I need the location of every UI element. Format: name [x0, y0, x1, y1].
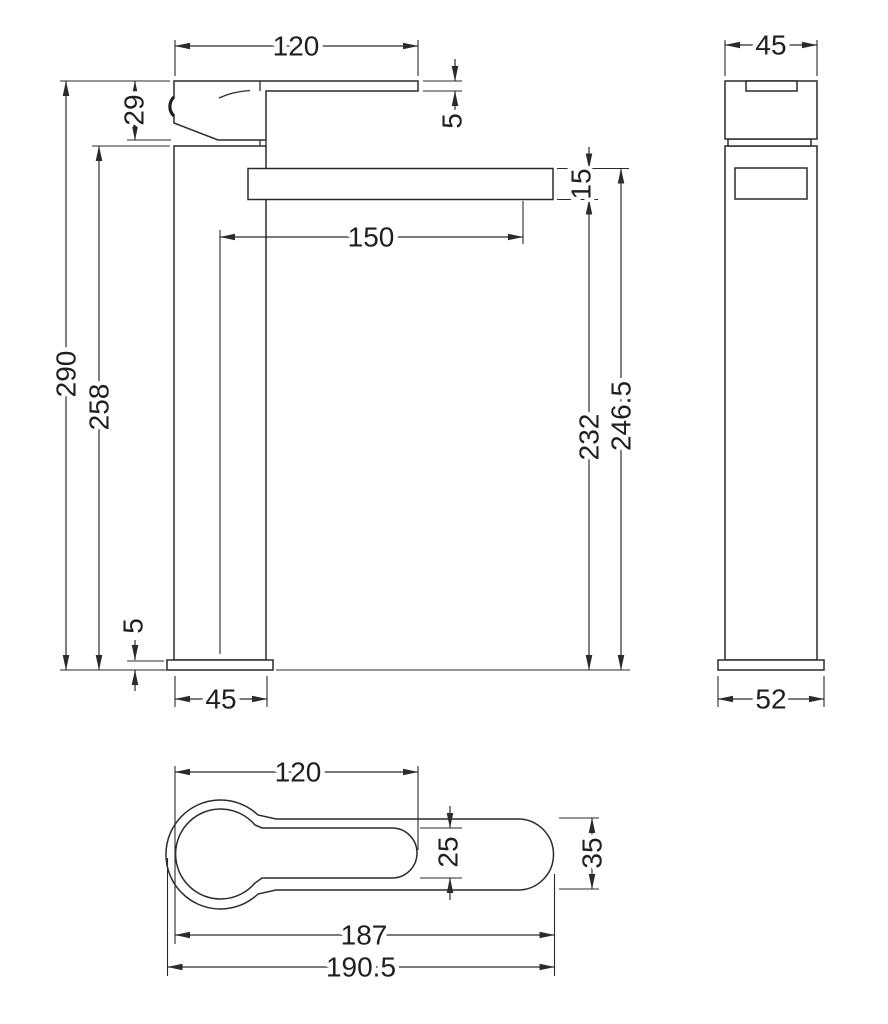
dim-plan-body-length: 187	[341, 920, 388, 951]
dim-front-body-height: 258	[84, 384, 115, 431]
technical-drawing-canvas: 120 29 5 15 150 290 258 232 246.5 5 45 4…	[0, 0, 888, 1024]
dim-front-lever-length: 120	[273, 31, 320, 62]
front-handle-lever	[170, 81, 418, 140]
dim-plan-spout-width: 35	[577, 837, 608, 868]
dim-front-height-spout-bottom: 232	[574, 414, 605, 461]
side-spout-end	[735, 168, 807, 199]
dim-plan-overall-length: 190.5	[326, 952, 396, 983]
dim-front-base-thickness: 5	[118, 618, 149, 634]
side-base-plate	[718, 660, 824, 670]
side-lever-end	[746, 81, 797, 91]
plan-view-outline	[166, 800, 554, 909]
front-base-plate	[167, 660, 273, 670]
front-dimension-lines	[66, 46, 621, 699]
front-view: 120 29 5 15 150 290 258 232 246.5 5 45	[51, 31, 637, 715]
side-view: 45 52	[718, 30, 824, 715]
side-cartridge-joint	[728, 139, 811, 146]
dim-front-spout-projection: 150	[348, 222, 395, 253]
dim-front-height-spout-top: 246.5	[606, 381, 637, 451]
front-extension-lines	[60, 40, 630, 707]
front-view-outline	[167, 81, 553, 670]
dim-front-body-width: 45	[205, 684, 236, 715]
dim-plan-lever-width: 25	[433, 836, 464, 867]
side-view-outline	[718, 81, 824, 670]
dim-front-handle-height: 29	[119, 94, 150, 125]
dim-side-base-width: 52	[755, 684, 786, 715]
side-body	[725, 146, 817, 660]
dim-plan-lever-length: 120	[275, 757, 322, 788]
dim-front-lever-thickness: 5	[437, 113, 468, 129]
tap-technical-drawing: 120 29 5 15 150 290 258 232 246.5 5 45 4…	[0, 0, 888, 1024]
plan-view: 120 25 35 187 190.5	[166, 757, 608, 983]
dim-front-spout-thickness: 15	[566, 168, 597, 199]
front-spout	[248, 169, 553, 200]
dim-side-head-width: 45	[755, 30, 786, 61]
dim-front-overall-height: 290	[51, 351, 82, 398]
